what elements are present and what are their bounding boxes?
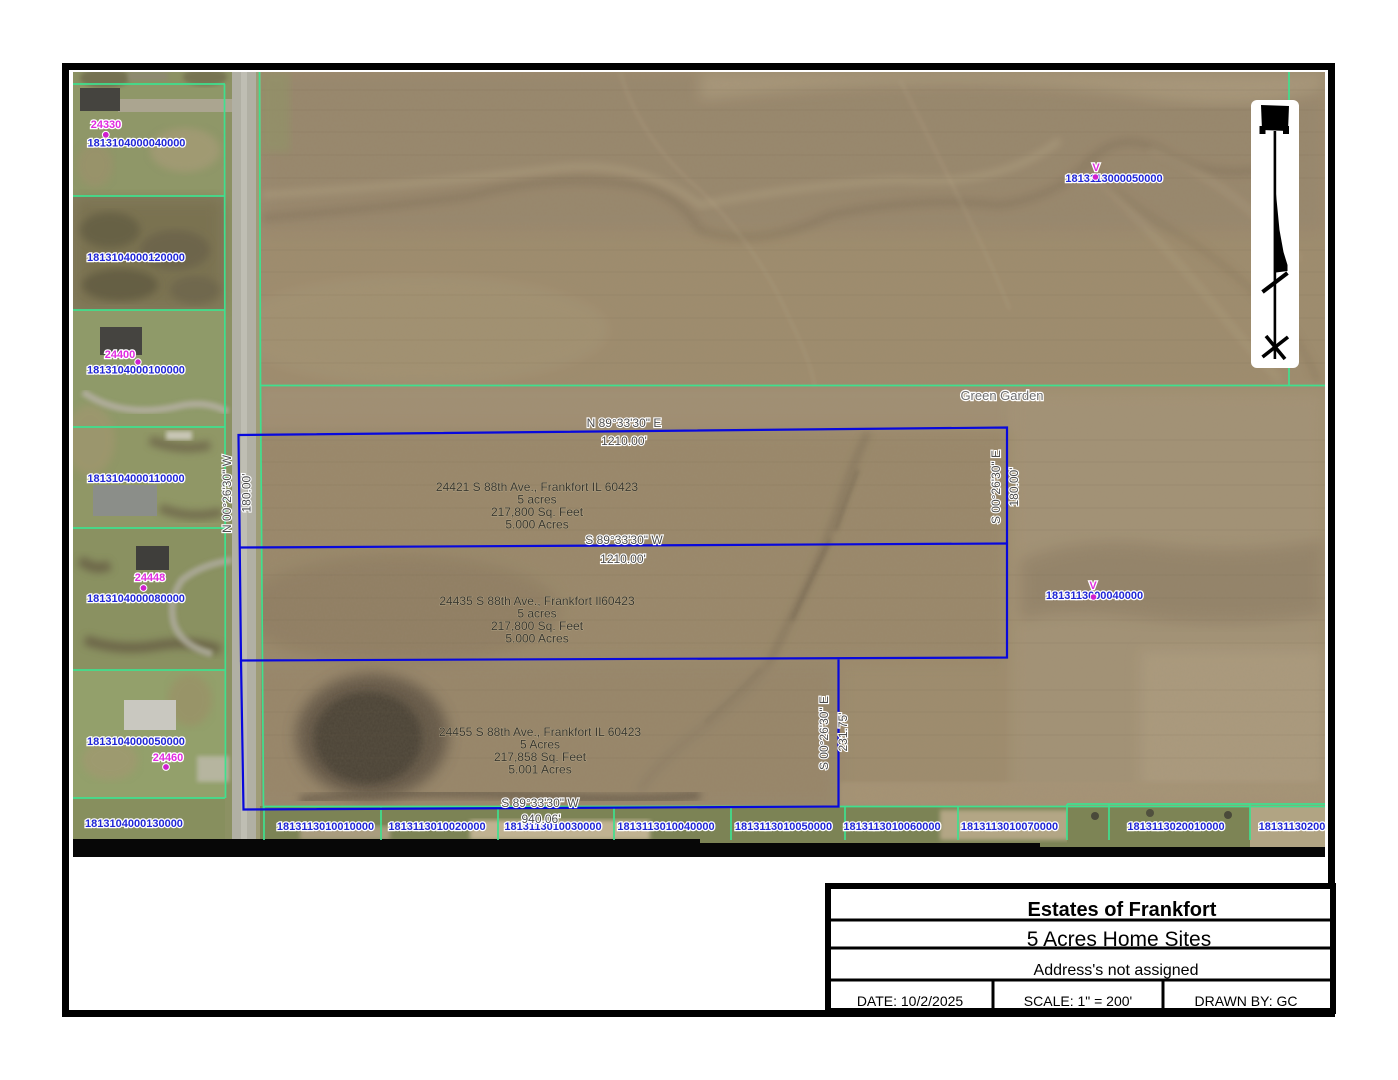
svg-text:S 00°26'30" E: S 00°26'30" E (817, 696, 831, 770)
svg-text:1813104000080000: 1813104000080000 (87, 593, 185, 605)
svg-text:1210.00': 1210.00' (601, 434, 647, 448)
svg-text:5.000 Acres: 5.000 Acres (505, 518, 568, 532)
svg-text:18131130200: 18131130200 (1259, 821, 1326, 833)
svg-text:DRAWN BY: GC: DRAWN BY: GC (1195, 993, 1298, 1009)
svg-text:24460: 24460 (153, 752, 184, 764)
svg-text:Address's not assigned: Address's not assigned (1034, 962, 1199, 979)
svg-text:231.75': 231.75' (836, 713, 850, 752)
svg-text:1210.00': 1210.00' (600, 552, 646, 566)
svg-text:Estates of Frankfort: Estates of Frankfort (1028, 899, 1217, 921)
svg-text:24448: 24448 (135, 572, 166, 584)
svg-text:1813104000120000: 1813104000120000 (87, 252, 185, 264)
svg-text:1813113010010000: 1813113010010000 (277, 821, 374, 833)
svg-text:S 89°33'30" W: S 89°33'30" W (501, 796, 579, 810)
svg-text:180.00': 180.00' (240, 474, 254, 513)
svg-text:5 Acres Home Sites: 5 Acres Home Sites (1027, 928, 1211, 951)
svg-text:1813104000110000: 1813104000110000 (87, 473, 184, 485)
svg-text:1813113010020000: 1813113010020000 (388, 821, 485, 833)
svg-text:1813113020010000: 1813113020010000 (1127, 821, 1224, 833)
svg-text:Green Garden: Green Garden (960, 388, 1043, 403)
svg-text:1813113000050000: 1813113000050000 (1065, 173, 1162, 185)
svg-text:S 00°26'30" E: S 00°26'30" E (989, 450, 1003, 524)
svg-text:S 89°33'30" W: S 89°33'30" W (585, 533, 663, 547)
svg-text:1813113010060000: 1813113010060000 (843, 821, 940, 833)
svg-text:1813113010050000: 1813113010050000 (735, 821, 832, 833)
svg-text:1813104000100000: 1813104000100000 (87, 365, 185, 377)
svg-text:940.06': 940.06' (522, 812, 561, 826)
svg-text:5.000 Acres: 5.000 Acres (505, 632, 568, 646)
svg-text:DATE: 10/2/2025: DATE: 10/2/2025 (857, 993, 964, 1009)
svg-text:N 89°33'30" E: N 89°33'30" E (587, 416, 662, 430)
svg-text:V: V (1089, 580, 1097, 592)
svg-text:1813104000130000: 1813104000130000 (85, 818, 183, 830)
svg-text:1813104000050000: 1813104000050000 (87, 736, 185, 748)
svg-text:SCALE: 1" = 200': SCALE: 1" = 200' (1024, 993, 1132, 1009)
svg-text:24330: 24330 (91, 119, 122, 131)
svg-text:180.00': 180.00' (1007, 468, 1021, 507)
svg-text:1813113010040000: 1813113010040000 (617, 821, 714, 833)
svg-text:N 00°26'30" W: N 00°26'30" W (220, 454, 234, 533)
svg-text:24400: 24400 (105, 349, 136, 361)
svg-text:1813113010070000: 1813113010070000 (961, 821, 1058, 833)
svg-text:V: V (1092, 162, 1100, 174)
svg-text:1813104000040000: 1813104000040000 (88, 138, 186, 150)
svg-text:5.001 Acres: 5.001 Acres (508, 763, 571, 777)
